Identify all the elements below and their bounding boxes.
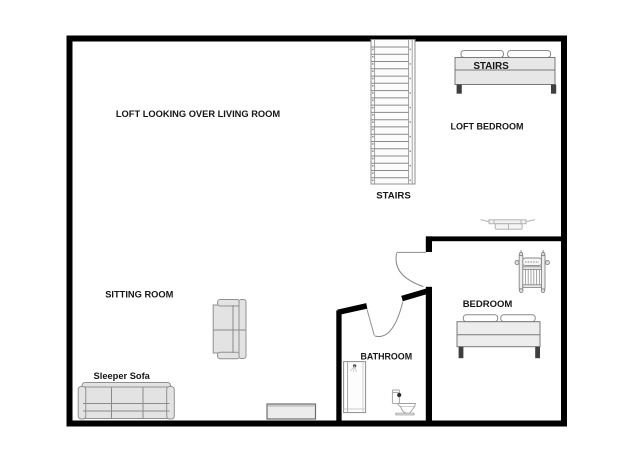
svg-text:LOFT LOOKING OVER LIVING ROOM: LOFT LOOKING OVER LIVING ROOM — [116, 109, 280, 119]
svg-text:LOFT BEDROOM: LOFT BEDROOM — [451, 122, 524, 132]
svg-text:BATHROOM: BATHROOM — [360, 352, 412, 362]
svg-text:STAIRS: STAIRS — [473, 61, 509, 72]
svg-text:STAIRS: STAIRS — [376, 191, 411, 202]
svg-text:Sleeper Sofa: Sleeper Sofa — [94, 371, 151, 381]
svg-text:BEDROOM: BEDROOM — [463, 299, 513, 310]
svg-text:SITTING ROOM: SITTING ROOM — [105, 290, 173, 300]
